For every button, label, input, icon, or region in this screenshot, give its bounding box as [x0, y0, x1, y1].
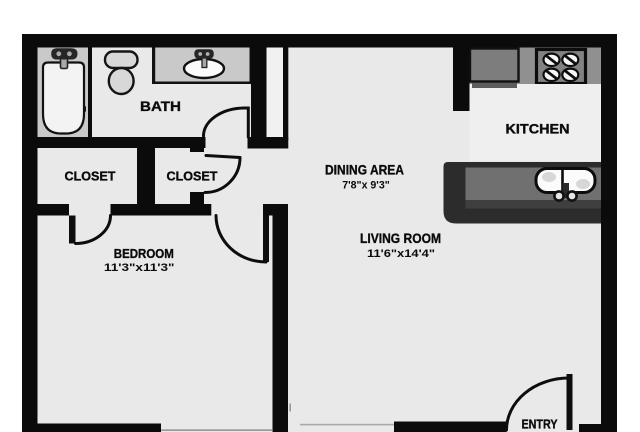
svg-text:DINING AREA: DINING AREA: [325, 163, 404, 178]
svg-text:KITCHEN: KITCHEN: [506, 122, 570, 137]
svg-text:BATH: BATH: [140, 99, 181, 114]
svg-text:11'6"x14'4": 11'6"x14'4": [367, 248, 435, 260]
svg-text:ENTRY: ENTRY: [522, 417, 558, 432]
svg-text:BEDROOM: BEDROOM: [114, 246, 174, 261]
svg-text:CLOSET: CLOSET: [167, 169, 218, 184]
svg-text:CLOSET: CLOSET: [65, 169, 116, 184]
svg-text:LIVING ROOM: LIVING ROOM: [360, 231, 441, 246]
svg-text:7'8"x 9'3": 7'8"x 9'3": [342, 180, 390, 192]
svg-text:11'3"x11'3": 11'3"x11'3": [104, 262, 175, 274]
